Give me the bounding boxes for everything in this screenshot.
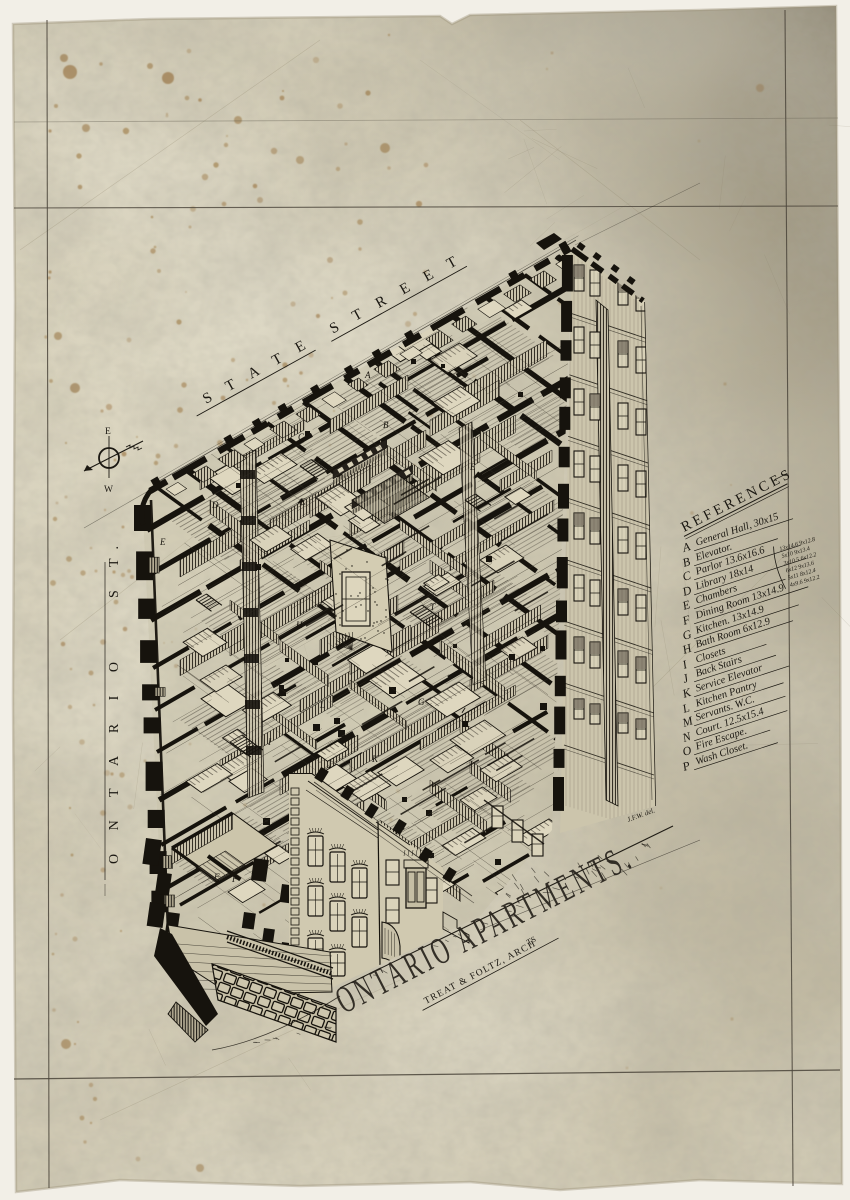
svg-text:B: B (383, 420, 389, 430)
svg-text:H: H (295, 620, 303, 630)
svg-text:K: K (371, 754, 379, 764)
svg-text:G: G (418, 697, 425, 707)
svg-text:E: E (469, 462, 476, 472)
svg-text:D: D (211, 500, 219, 510)
svg-text:L: L (319, 700, 325, 710)
svg-text:E: E (299, 497, 306, 507)
svg-text:A: A (364, 370, 371, 380)
svg-text:O N T A R I O S T.: O N T A R I O S T. (107, 536, 122, 864)
svg-text:E: E (159, 537, 166, 547)
svg-text:W: W (104, 485, 113, 495)
svg-text:C: C (298, 432, 305, 442)
svg-text:E: E (105, 427, 111, 437)
